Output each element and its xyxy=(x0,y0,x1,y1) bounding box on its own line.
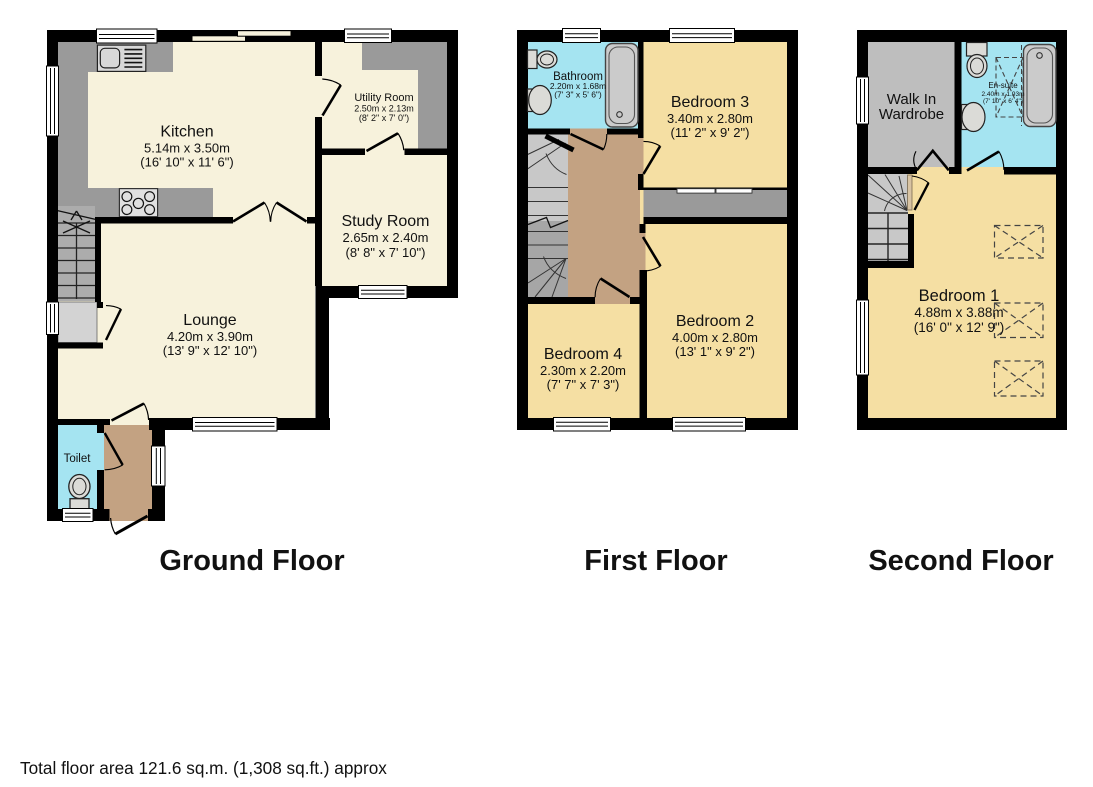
svg-text:(7' 7" x 7' 3"): (7' 7" x 7' 3") xyxy=(547,377,620,392)
svg-text:Utility Room: Utility Room xyxy=(354,92,413,104)
svg-text:2.65m x 2.40m: 2.65m x 2.40m xyxy=(343,230,429,245)
svg-text:4.20m x 3.90m: 4.20m x 3.90m xyxy=(167,329,253,344)
svg-text:2.30m x 2.20m: 2.30m x 2.20m xyxy=(540,363,626,378)
svg-text:Toilet: Toilet xyxy=(64,453,92,465)
svg-text:(16' 10" x 11' 6"): (16' 10" x 11' 6") xyxy=(140,154,233,169)
svg-text:(13' 1" x 9' 2"): (13' 1" x 9' 2") xyxy=(675,344,755,359)
svg-text:Lounge: Lounge xyxy=(183,312,236,329)
svg-text:3.40m x 2.80m: 3.40m x 2.80m xyxy=(667,111,753,126)
svg-text:Bedroom 3: Bedroom 3 xyxy=(671,94,749,111)
svg-text:First Floor: First Floor xyxy=(584,545,727,577)
svg-text:Kitchen: Kitchen xyxy=(160,124,213,141)
svg-text:Ground Floor: Ground Floor xyxy=(159,545,344,577)
svg-text:(7' 10" x 6' 4"): (7' 10" x 6' 4") xyxy=(983,98,1023,105)
svg-text:5.14m x 3.50m: 5.14m x 3.50m xyxy=(144,140,230,155)
svg-text:Wardrobe: Wardrobe xyxy=(879,106,944,123)
svg-text:2.40m x 1.93m: 2.40m x 1.93m xyxy=(982,91,1025,98)
svg-text:Second Floor: Second Floor xyxy=(868,545,1053,577)
svg-text:Study Room: Study Room xyxy=(341,213,429,230)
svg-text:Bedroom 1: Bedroom 1 xyxy=(919,287,1000,305)
svg-text:(7' 3" x 5' 6"): (7' 3" x 5' 6") xyxy=(554,90,602,100)
svg-text:Bedroom 2: Bedroom 2 xyxy=(676,313,754,330)
svg-text:4.88m x 3.88m: 4.88m x 3.88m xyxy=(914,305,1003,320)
svg-text:En-suite: En-suite xyxy=(988,81,1018,90)
svg-text:Bedroom 4: Bedroom 4 xyxy=(544,346,622,363)
svg-text:(8' 2" x 7' 0"): (8' 2" x 7' 0") xyxy=(359,113,409,123)
svg-text:(16' 0" x 12' 9"): (16' 0" x 12' 9") xyxy=(914,320,1005,335)
svg-text:4.00m x 2.80m: 4.00m x 2.80m xyxy=(672,330,758,345)
svg-text:(8' 8" x 7' 10"): (8' 8" x 7' 10") xyxy=(346,245,426,260)
svg-text:(13' 9" x 12' 10"): (13' 9" x 12' 10") xyxy=(163,343,257,358)
svg-text:(11' 2" x 9' 2"): (11' 2" x 9' 2") xyxy=(671,125,750,140)
svg-text:2.50m x 2.13m: 2.50m x 2.13m xyxy=(354,104,414,114)
svg-text:Total floor area 121.6 sq.m. (: Total floor area 121.6 sq.m. (1,308 sq.f… xyxy=(20,758,387,778)
